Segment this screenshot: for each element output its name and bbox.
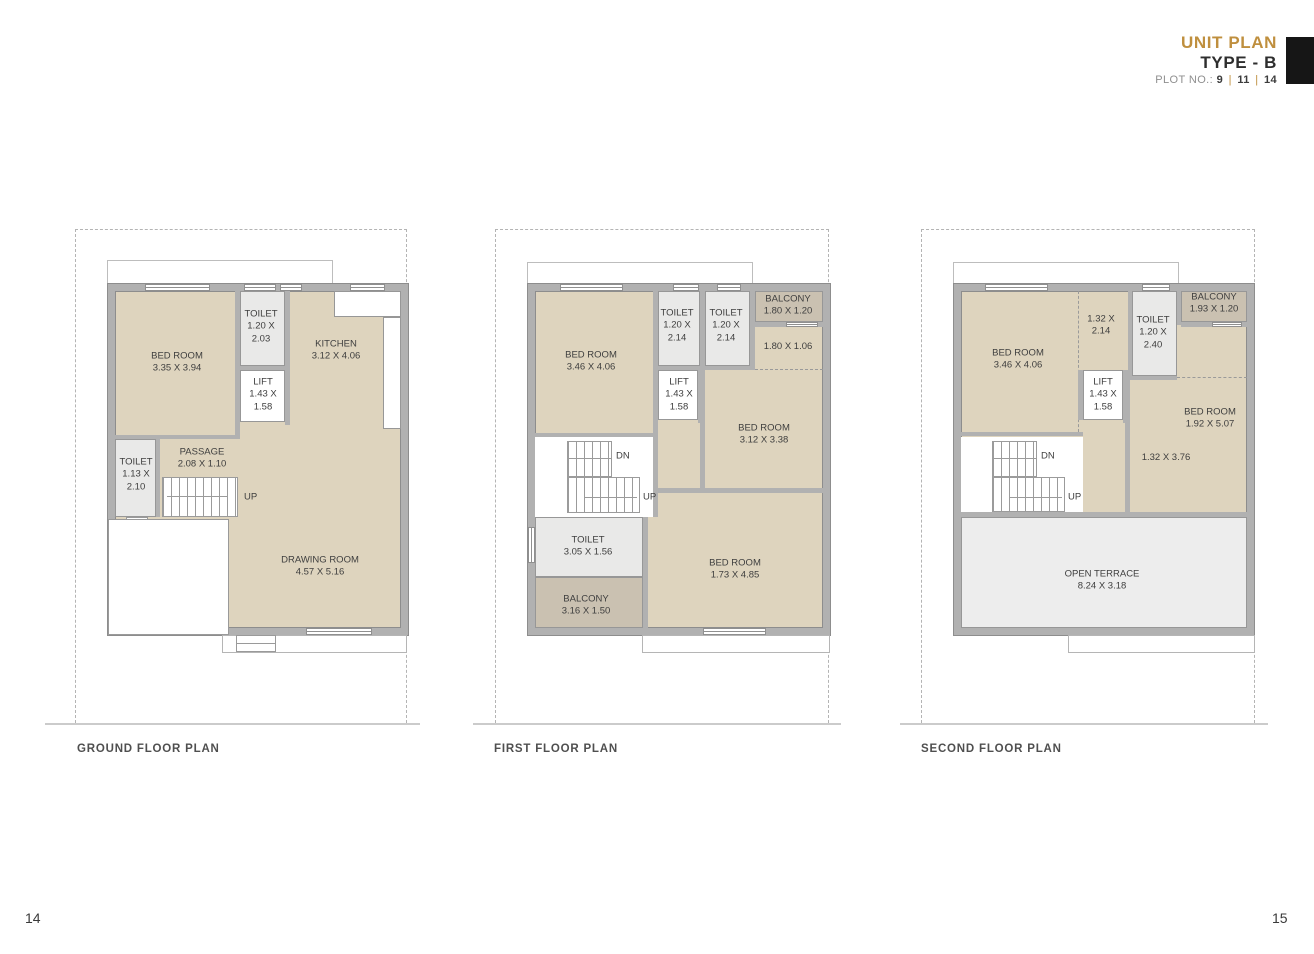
entrance-projection: [642, 635, 830, 653]
brochure-page: UNIT PLAN TYPE - B PLOT NO.: 9 | 11 | 14…: [0, 0, 1314, 954]
wall: [1078, 370, 1083, 420]
window: [717, 284, 741, 291]
area-divider-line: [1177, 377, 1247, 378]
window: [306, 628, 372, 635]
plot-prefix: PLOT NO.:: [1155, 74, 1213, 86]
area-label: 1.32 X 3.76: [1142, 452, 1191, 464]
window: [145, 284, 210, 291]
stair-dn-label: DN: [1041, 451, 1055, 462]
plan-caption-second: SECOND FLOOR PLAN: [921, 743, 1062, 755]
window: [560, 284, 623, 291]
canopy-outline: [953, 262, 1179, 284]
area-label: 1.32 X2.14: [1087, 314, 1114, 339]
wall: [1132, 376, 1177, 380]
room-label-bedroom: BED ROOM3.12 X 3.38: [738, 423, 790, 448]
plot-number: 9: [1217, 74, 1224, 86]
room-label-kitchen: KITCHEN3.12 X 4.06: [312, 339, 361, 364]
porch-area: [108, 519, 229, 635]
plot-divider: |: [1253, 74, 1260, 86]
stair-up-label: UP: [244, 492, 257, 503]
room-label-balcony: BALCONY1.80 X 1.20: [764, 294, 813, 319]
wall: [285, 291, 290, 425]
room-label-toilet: TOILET3.05 X 1.56: [564, 535, 613, 560]
kitchen-counter: [383, 317, 401, 429]
window: [528, 527, 535, 563]
stair-rail: [993, 458, 1037, 459]
plan-caption-first: FIRST FLOOR PLAN: [494, 743, 618, 755]
room-label-balcony: BALCONY1.93 X 1.20: [1190, 292, 1239, 317]
wall: [156, 439, 160, 517]
room-label-open-terrace: OPEN TERRACE8.24 X 3.18: [1065, 569, 1140, 594]
room-label-toilet: TOILET1.20 X2.14: [709, 307, 742, 344]
room-label-toilet: TOILET1.20 X2.14: [660, 307, 693, 344]
plan-caption-ground: GROUND FLOOR PLAN: [77, 743, 220, 755]
window: [985, 284, 1048, 291]
window: [673, 284, 699, 291]
window: [350, 284, 385, 291]
wall: [1123, 370, 1130, 423]
plot-number: 11: [1237, 74, 1249, 86]
wall: [658, 488, 823, 493]
room-label-bedroom: BED ROOM3.46 X 4.06: [565, 350, 617, 375]
room-label-bedroom: BED ROOM1.92 X 5.07: [1184, 407, 1236, 432]
room-label-bedroom: BED ROOM1.73 X 4.85: [709, 558, 761, 583]
room-label-lift: LIFT1.43 X1.58: [665, 376, 692, 413]
room-label-drawing-room: DRAWING ROOM4.57 X 5.16: [281, 555, 359, 580]
room-label-bedroom: BED ROOM3.46 X 4.06: [992, 348, 1044, 373]
room-label-toilet: TOILET1.20 X2.03: [244, 308, 277, 345]
staircase-up: [567, 477, 640, 513]
window: [1142, 284, 1170, 291]
stair-rail: [585, 497, 637, 498]
staircase-down: [992, 441, 1037, 477]
stair-up-label: UP: [1068, 492, 1081, 503]
room-label-lift: LIFT1.43 X1.58: [1089, 376, 1116, 413]
wall: [1125, 423, 1130, 515]
stair-rail: [568, 458, 612, 459]
plot-divider: |: [1227, 74, 1234, 86]
entrance-projection: [1068, 635, 1255, 653]
room-label-toilet: TOILET1.20 X2.40: [1136, 314, 1169, 351]
stair-rail: [167, 496, 227, 497]
canopy-outline: [107, 260, 333, 284]
stair-rail: [1010, 497, 1062, 498]
plot-number: 14: [1264, 74, 1277, 86]
page-number-right: 15: [1272, 910, 1288, 926]
window: [703, 628, 766, 635]
plot-numbers: PLOT NO.: 9 | 11 | 14: [1155, 74, 1277, 86]
wall: [698, 370, 705, 423]
corner-tab-block: [1286, 37, 1314, 84]
area-divider-line: [755, 369, 823, 370]
canopy-outline: [527, 262, 753, 284]
room-label-bedroom: BED ROOM3.35 X 3.94: [151, 351, 203, 376]
room-label-balcony: BALCONY3.16 X 1.50: [562, 594, 611, 619]
entry-step: [236, 635, 276, 652]
staircase-up: [992, 477, 1065, 512]
page-title: UNIT PLAN: [1181, 33, 1277, 53]
kitchen-counter: [334, 291, 401, 317]
window: [1212, 322, 1242, 327]
room-label-lift: LIFT1.43 X1.58: [249, 376, 276, 413]
plan-baseline: [45, 723, 420, 725]
staircase-down: [567, 441, 612, 477]
room-label-passage: PASSAGE2.08 X 1.10: [178, 447, 227, 472]
page-subtitle: TYPE - B: [1200, 53, 1277, 73]
window: [786, 322, 818, 327]
staircase: [162, 477, 238, 517]
page-number-left: 14: [25, 910, 41, 926]
window: [244, 284, 276, 291]
area-label: 1.80 X 1.06: [764, 341, 813, 353]
plan-baseline: [473, 723, 841, 725]
stair-up-label: UP: [643, 492, 656, 503]
wall: [961, 432, 1083, 436]
window: [280, 284, 302, 291]
stair-dn-label: DN: [616, 451, 630, 462]
plan-baseline: [900, 723, 1268, 725]
room-label-toilet: TOILET1.13 X2.10: [119, 456, 152, 493]
